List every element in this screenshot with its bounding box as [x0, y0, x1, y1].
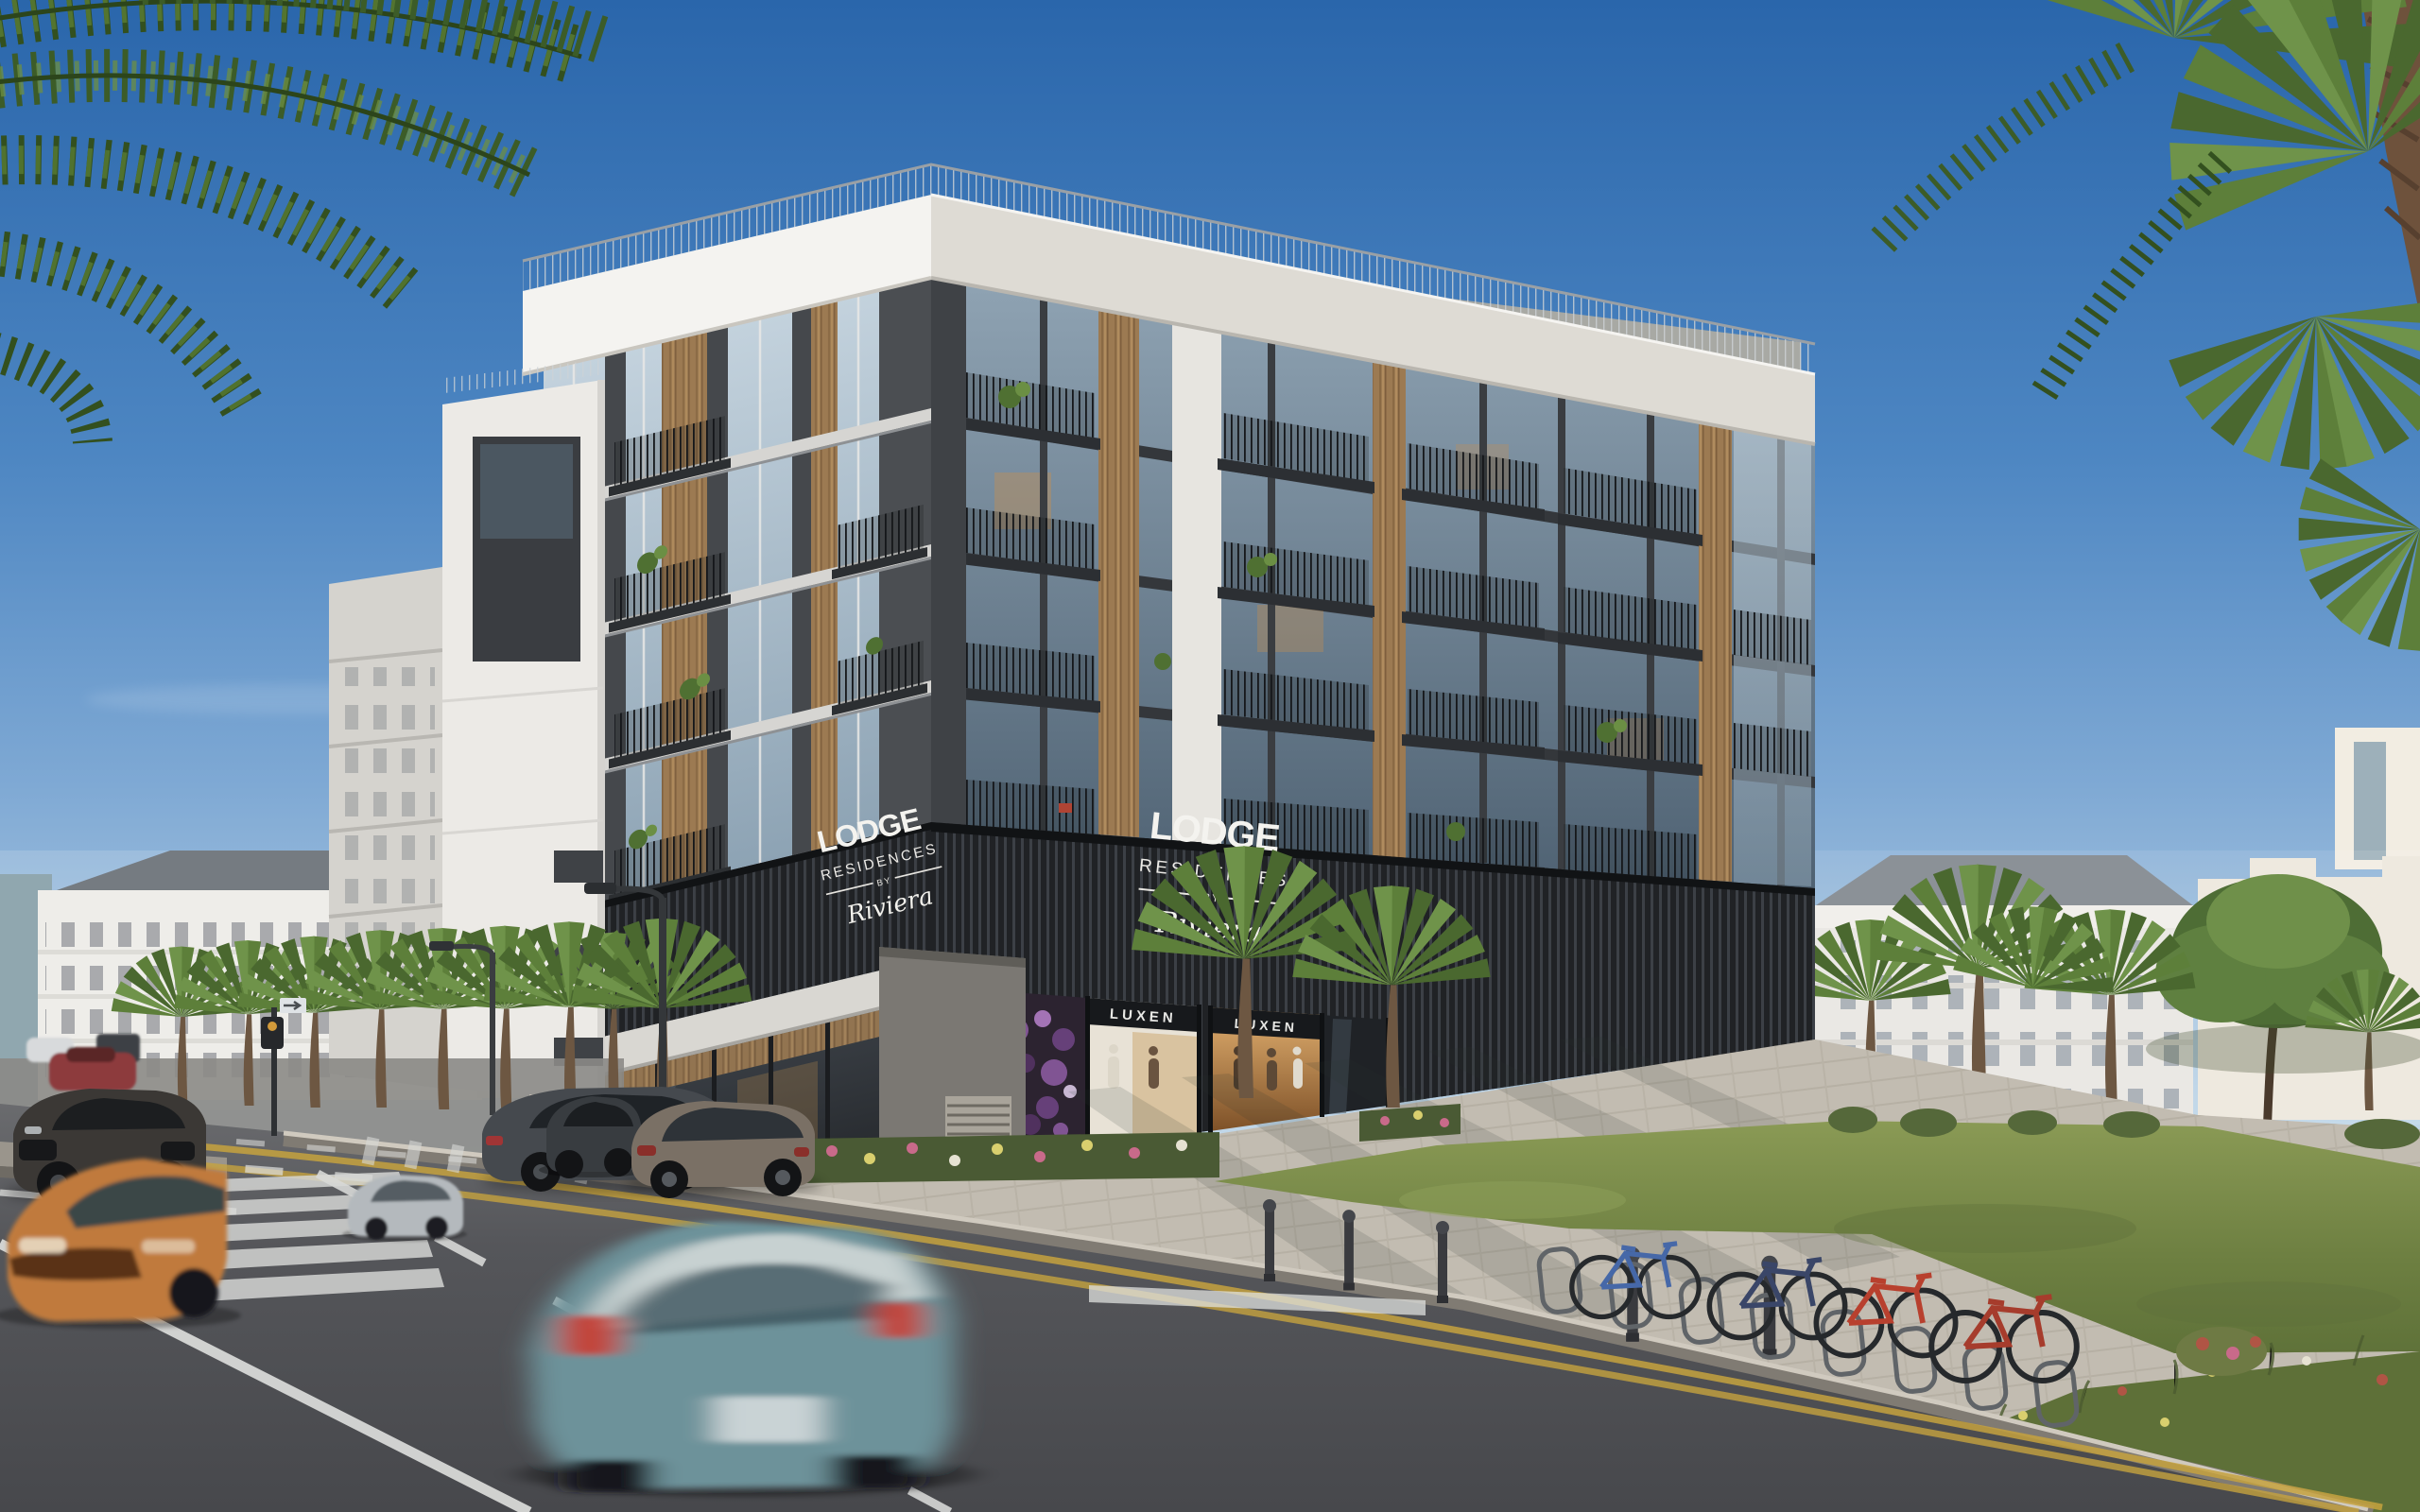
parked-bronze-suv: [624, 1101, 822, 1198]
timber-column: [1699, 421, 1732, 882]
architectural-render: LUXEN LUXEN: [0, 0, 2420, 1512]
red-shrub: [2176, 1327, 2267, 1376]
scene-stage: LUXEN LUXEN: [0, 0, 2420, 1512]
